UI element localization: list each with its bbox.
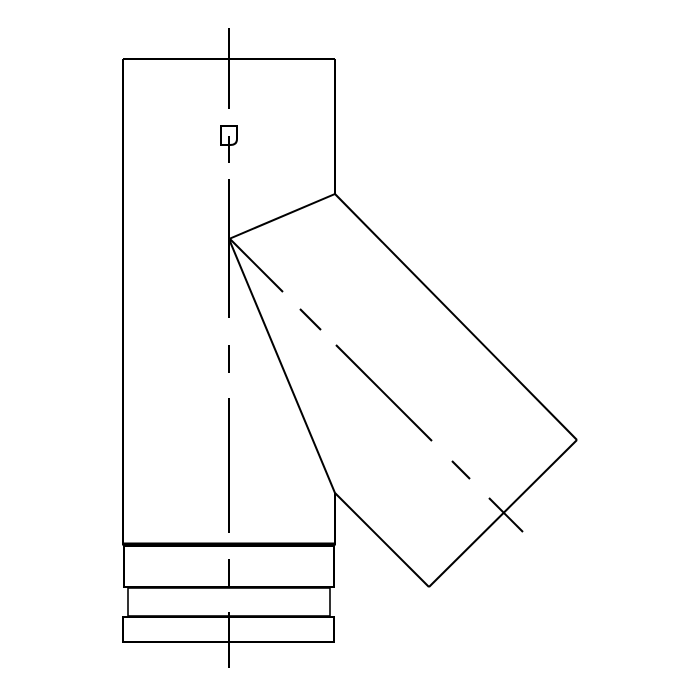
socket-band-middle: [128, 588, 330, 616]
branch-axis-centerline-segment: [489, 498, 523, 532]
branch-axis-centerline-segment: [452, 461, 470, 479]
branch-top-edge: [335, 194, 577, 440]
branch-bottom-edge: [335, 493, 429, 587]
technical-drawing-canvas: [0, 0, 700, 700]
branch-end-cap-edge: [429, 440, 577, 587]
branch-miter-line-upper: [229, 194, 335, 239]
branch-axis-centerline-segment: [300, 309, 321, 330]
branch-axis-centerline-segment: [336, 345, 432, 441]
branch-intersection-line-lower: [229, 239, 335, 493]
pipe-fitting-drawing: [0, 0, 700, 700]
branch-axis-centerline-segment: [230, 239, 283, 292]
